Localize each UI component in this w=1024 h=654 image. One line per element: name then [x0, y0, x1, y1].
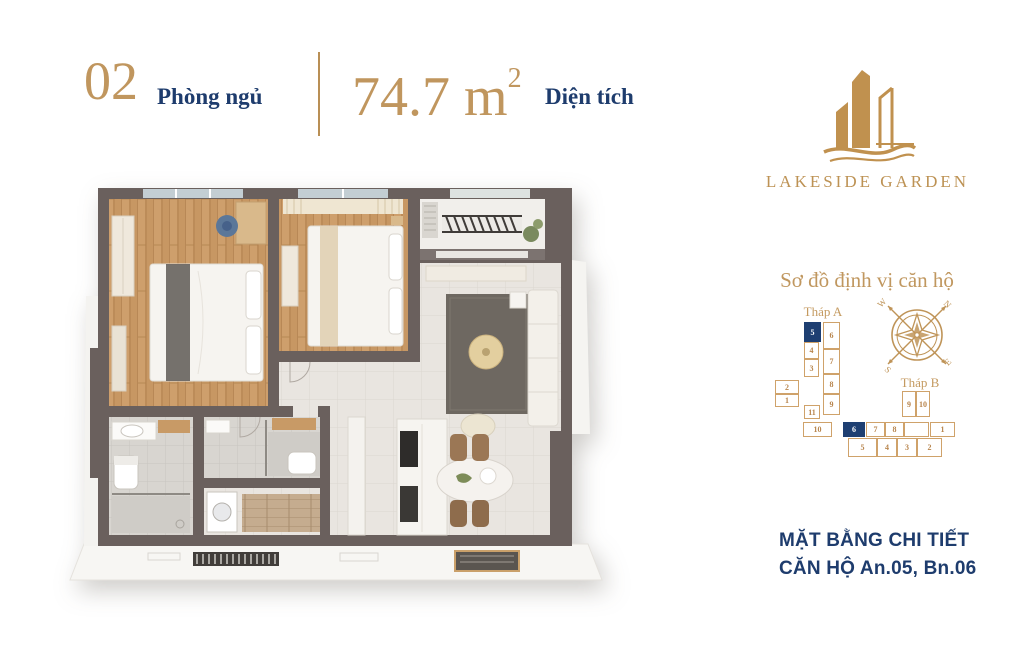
bath-2-shelf — [272, 418, 316, 430]
bed-1-pillow — [246, 271, 261, 319]
unit-box-5: 5 — [804, 322, 821, 342]
area-label: Diện tích — [545, 84, 634, 110]
lakeside-garden-logo-icon — [818, 60, 918, 170]
unit-box-3: 3 — [804, 359, 819, 377]
bed-2-pillow — [389, 234, 402, 280]
side-table — [510, 292, 526, 308]
nightstand — [391, 216, 403, 225]
table-bowl — [480, 468, 496, 484]
apartment-area: 74.7 m2 — [352, 48, 522, 128]
unit-box-9: 9 — [823, 394, 840, 415]
facade-skirt-right — [572, 260, 590, 434]
living-console — [426, 266, 526, 281]
compass-w: W — [876, 296, 889, 309]
bath-1-shelf — [158, 420, 190, 433]
logo-tower-middle — [852, 70, 870, 148]
wall-bath1-bath2 — [193, 417, 204, 535]
balcony-plant — [533, 219, 543, 229]
bed-2-blanket — [320, 226, 338, 346]
unit-box-2: 2 — [775, 380, 799, 394]
bedroom-count-label: Phòng ngủ — [157, 84, 262, 110]
sink-1 — [121, 425, 143, 437]
lakeside-garden-logo-text: LAKESIDE GARDEN — [755, 172, 980, 192]
unit-box-6: 6 — [843, 422, 865, 437]
wardrobe-2 — [282, 246, 298, 306]
wall-bed2-living — [408, 188, 420, 362]
plan-caption-line1: MẶT BẰNG CHI TIẾT — [779, 527, 989, 555]
tv-console-1 — [112, 326, 126, 391]
brochure-page: { "header": { "bedrooms_number": "02", "… — [0, 0, 1024, 654]
unit-box-8: 8 — [885, 422, 904, 437]
tower-a-label: Tháp A — [788, 304, 858, 320]
logo-wave-2 — [830, 155, 914, 161]
dining-chair — [472, 500, 489, 527]
bed-1-runner — [166, 264, 190, 381]
unit-box-8: 8 — [823, 374, 840, 394]
unit-box-3: 3 — [897, 438, 917, 457]
compass-s: S — [883, 364, 894, 375]
balcony-opening — [450, 189, 530, 198]
wall-bed2-hall — [318, 351, 408, 362]
unit-box-11: 11 — [804, 405, 820, 419]
header-divider — [318, 52, 320, 136]
kitchen-counter — [348, 417, 365, 535]
toilet-2 — [288, 452, 316, 474]
unit-box-6: 6 — [823, 322, 840, 349]
floorplan-3d-render — [58, 176, 603, 612]
plan-caption-line2: CĂN HỘ An.05, Bn.06 — [779, 555, 989, 583]
wall-segment — [109, 406, 165, 417]
compass-e: E — [942, 356, 953, 367]
bedroom-count: 02 — [84, 52, 138, 110]
unit-box-5: 5 — [848, 438, 877, 457]
bed-2-pillow — [389, 288, 402, 334]
unit-box-4: 4 — [804, 342, 819, 359]
unit-box-10: 10 — [916, 391, 930, 417]
dining-chair — [472, 434, 489, 461]
unit-box-4: 4 — [877, 438, 897, 457]
wall-left-step — [90, 348, 101, 478]
area-superscript: 2 — [508, 63, 522, 94]
wall-segment — [185, 406, 240, 417]
facade-grille — [193, 552, 279, 566]
logo-tower-left — [836, 102, 848, 148]
tower-b-label: Tháp B — [885, 375, 955, 391]
locator-title: Sơ đồ định vị căn hộ — [752, 268, 982, 293]
dining-chair — [450, 500, 467, 527]
unit-box-7: 7 — [823, 349, 840, 374]
bedroom-1-window — [143, 189, 243, 198]
facade-window-unit — [455, 551, 519, 571]
stone-feature-wall — [242, 494, 320, 532]
toilet-1-tank — [114, 456, 138, 465]
unit-box-1: 1 — [930, 422, 955, 437]
tower-b-diagram: Tháp B 91067815432 — [843, 375, 963, 465]
balcony-louver — [422, 202, 438, 238]
washing-machine-door — [213, 503, 231, 521]
oven — [400, 431, 418, 467]
wall-bath2-utility — [204, 478, 320, 488]
compass-rose-icon: N E S W — [876, 294, 958, 376]
dining-table — [437, 458, 513, 502]
unit-box-10: 10 — [803, 422, 832, 437]
area-value: 74.7 m — [352, 66, 508, 128]
balcony-railing — [442, 216, 522, 232]
balcony-sliding-door — [436, 251, 528, 258]
unit-box-2: 2 — [917, 438, 942, 457]
wall-bed1-bed2 — [268, 188, 279, 417]
unit-box-7: 7 — [866, 422, 885, 437]
desk — [236, 202, 266, 244]
unit-box-9: 9 — [902, 391, 916, 417]
unit-box-core — [904, 422, 929, 437]
unit-box-1: 1 — [775, 394, 799, 407]
dining-chair — [450, 434, 467, 461]
wall-dining-right — [550, 431, 572, 546]
vanity-2 — [206, 420, 230, 433]
wall-segment — [318, 406, 330, 417]
wall-segment — [279, 351, 290, 362]
facade-skirt-bottom — [70, 544, 602, 580]
logo-tower-right — [880, 88, 892, 148]
plan-caption: MẶT BẰNG CHI TIẾT CĂN HỘ An.05, Bn.06 — [779, 527, 989, 583]
fridge — [400, 486, 418, 522]
wall-balcony-corner — [545, 188, 572, 263]
wall-utility-kitchen — [320, 417, 330, 535]
bed-1-pillow — [246, 326, 261, 374]
wall-segment — [265, 406, 293, 417]
